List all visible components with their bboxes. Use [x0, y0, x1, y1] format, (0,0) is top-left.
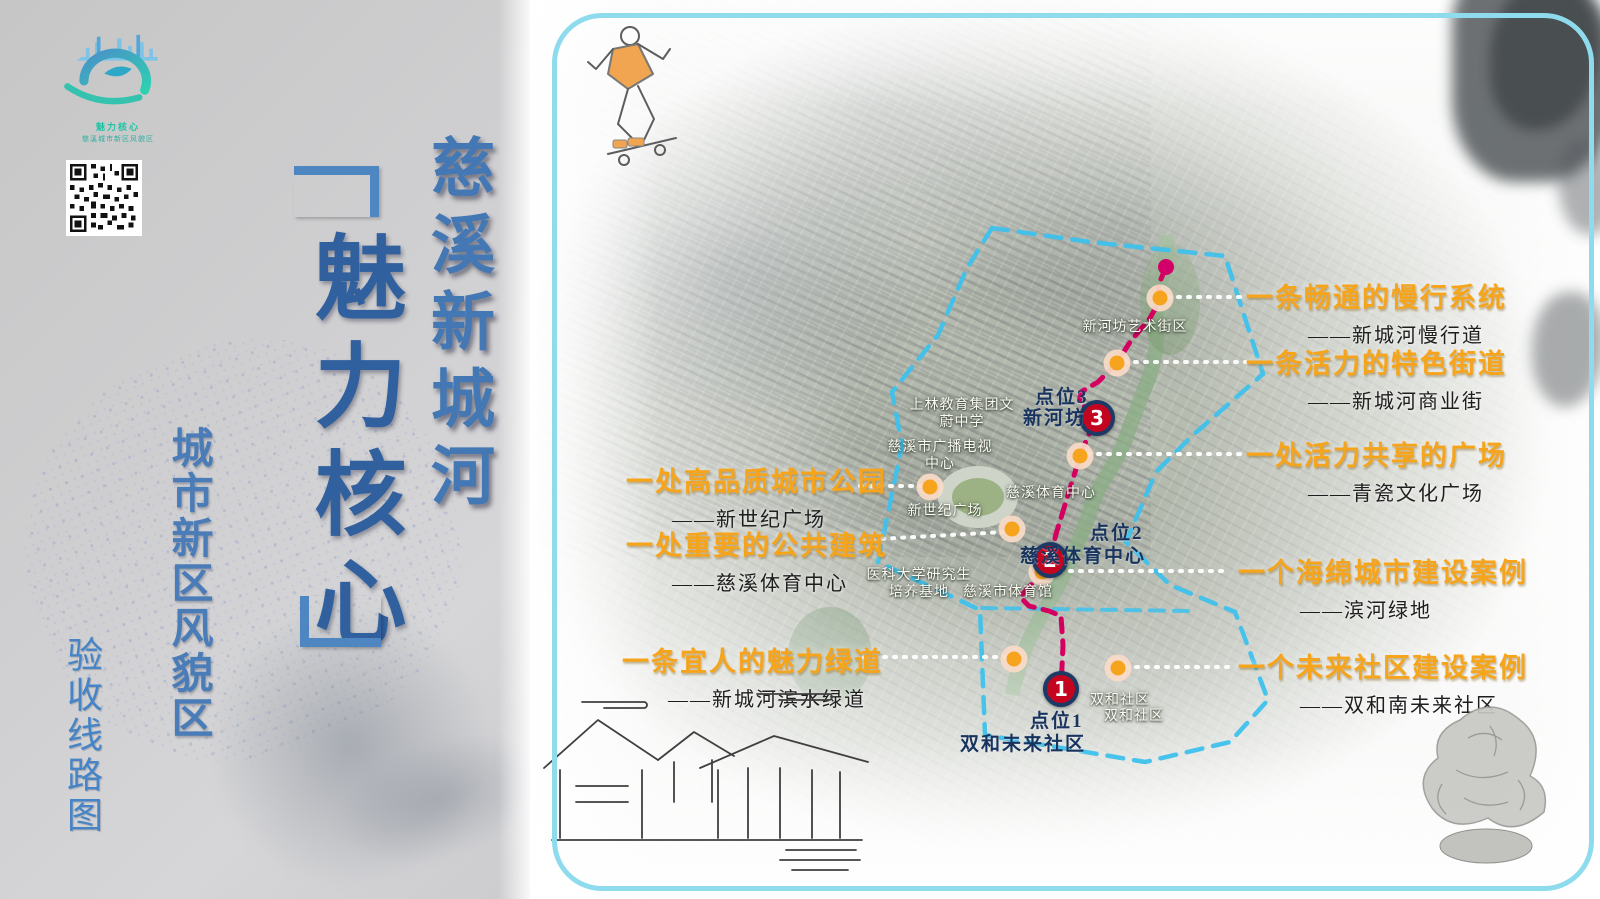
annotation-sub: ——滨河绿地 — [1300, 594, 1528, 623]
place-label-gymnasium: 慈溪市体育馆 — [958, 585, 1058, 602]
place-label-tv-center: 慈溪市广播电视中心 — [886, 440, 994, 474]
qr-code — [66, 160, 142, 236]
sculpture-sketch — [1398, 688, 1573, 873]
subtitle-vertical: 城市新区风貌区 — [158, 426, 219, 741]
point-label-3-line2: 新河坊 — [1023, 403, 1086, 430]
place-label-new-century-square: 新世纪广场 — [900, 504, 990, 521]
logo-subtagline: 慈溪城市新区风貌区 — [38, 134, 198, 144]
annotation-title: 一条活力的特色街道 — [1246, 342, 1507, 381]
main-title-vertical: 慈溪新城河 — [412, 134, 504, 519]
annotation-shared-plaza: 一处活力共享的广场 ——青瓷文化广场 — [1246, 434, 1507, 506]
poi-dot-new-century-square — [923, 480, 938, 495]
logo-tagline: 魅力核心 — [38, 120, 198, 133]
place-label-shuanghe-1: 双和社区 — [1083, 693, 1157, 710]
brand-logo: 魅力核心 慈溪城市新区风貌区 — [38, 22, 198, 144]
poi-dot-slow-lane — [1153, 291, 1168, 306]
boundary-road-segment — [982, 608, 1190, 611]
annotation-slow-system: 一条畅通的慢行系统 ——新城河慢行道 — [1246, 276, 1507, 348]
poi-dot-greenway — [1007, 652, 1022, 667]
annotation-title: 一条宜人的魅力绿道 — [622, 640, 883, 679]
point-label-1-line2: 双和未来社区 — [960, 729, 1086, 756]
annotation-public-building: 一处重要的公共建筑 ——慈溪体育中心 — [626, 524, 887, 596]
annotation-title: 一条畅通的慢行系统 — [1246, 276, 1507, 315]
annotation-sub: ——新城河商业街 — [1308, 385, 1507, 414]
annotation-title: 一处活力共享的广场 — [1246, 434, 1507, 473]
place-label-sports-center: 慈溪体育中心 — [996, 486, 1106, 503]
city-wave-logo-icon — [43, 22, 193, 114]
annotation-title: 一个未来社区建设案例 — [1238, 646, 1528, 685]
annotation-title: 一个海绵城市建设案例 — [1238, 551, 1528, 590]
map-panel: 3 2 1 新河坊艺术街区 上林教育集团文蔚中学 慈溪市广播电视中心 新世纪广场… — [530, 0, 1600, 899]
annotation-sub: ——慈溪体育中心 — [672, 567, 887, 596]
poster: 魅力核心 慈溪城市新区风貌区 慈溪新城河 魅力核心 城市新区风貌区 验收线路图 — [0, 0, 1600, 899]
traditional-buildings-sketch — [542, 690, 872, 885]
poi-dot-plaza — [1073, 449, 1088, 464]
poi-dot-commercial-street — [1110, 356, 1125, 371]
quote-bracket-open — [294, 166, 379, 217]
annotation-sponge-city: 一个海绵城市建设案例 ——滨河绿地 — [1238, 551, 1528, 623]
left-panel: 魅力核心 慈溪城市新区风貌区 慈溪新城河 魅力核心 城市新区风貌区 验收线路图 — [0, 0, 530, 899]
annotation-city-park: 一处高品质城市公园 ——新世纪广场 — [626, 460, 887, 532]
poi-dot-future-community — [1111, 661, 1126, 676]
annotation-feature-street: 一条活力的特色街道 ——新城河商业街 — [1246, 342, 1507, 414]
place-label-shuanghe-2: 双和社区 — [1097, 709, 1171, 726]
annotation-title: 一处重要的公共建筑 — [626, 524, 887, 563]
point-label-2-line2: 慈溪体育中心 — [1020, 541, 1146, 568]
quote-bracket-close — [300, 596, 381, 647]
annotation-sub: ——青瓷文化广场 — [1308, 477, 1507, 506]
poi-dot-sports-center — [1005, 522, 1020, 537]
place-label-school: 上林教育集团文蔚中学 — [908, 398, 1016, 432]
skateboarder-illustration — [558, 14, 698, 199]
point-marker-1: 1 — [1043, 671, 1079, 707]
caption-vertical: 验收线路图 — [56, 636, 108, 836]
place-label-art-district: 新河坊艺术街区 — [1035, 320, 1235, 337]
annotation-title: 一处高品质城市公园 — [626, 460, 887, 499]
route-end-dot — [1158, 259, 1174, 275]
